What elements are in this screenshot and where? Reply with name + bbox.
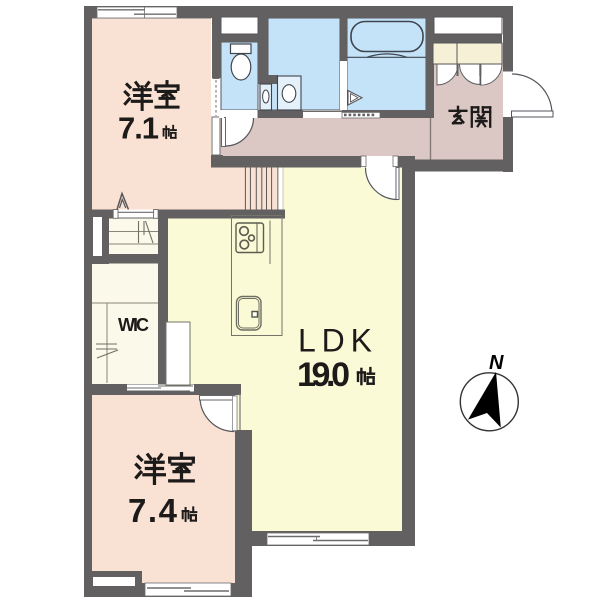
svg-text:7.1: 7.1 — [118, 111, 159, 146]
svg-text:WIC: WIC — [118, 315, 149, 335]
svg-text:LDK: LDK — [298, 323, 372, 359]
svg-text:N: N — [489, 352, 504, 374]
svg-text:7.4: 7.4 — [128, 492, 178, 529]
svg-text:19.0: 19.0 — [297, 356, 350, 394]
